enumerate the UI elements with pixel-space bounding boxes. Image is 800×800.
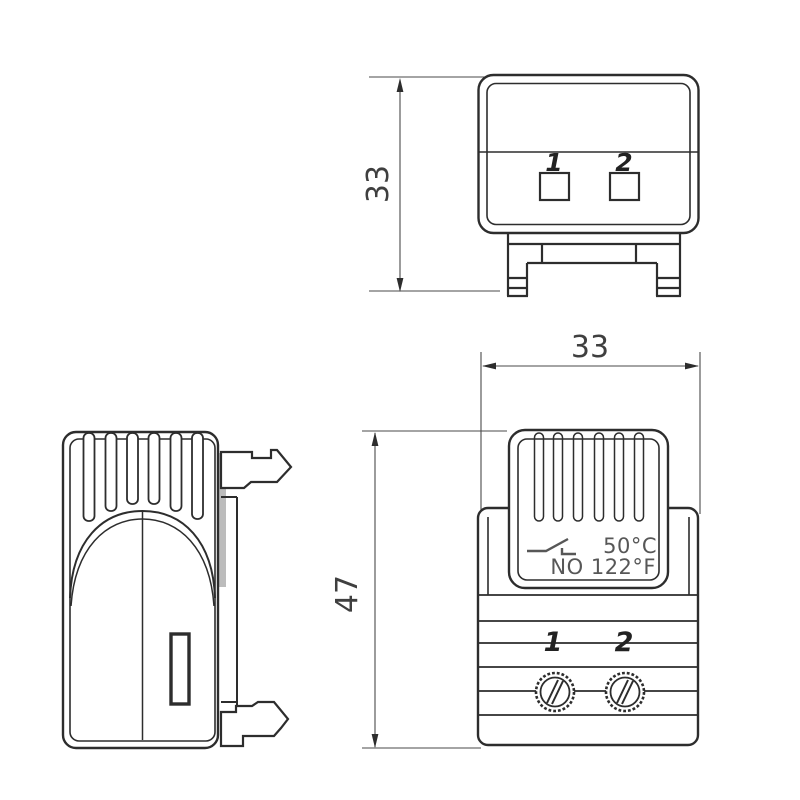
vent-slot <box>127 433 138 504</box>
screw-head <box>611 678 640 707</box>
terminal-port-2 <box>610 173 639 200</box>
din-rail-mount-top-view <box>507 233 681 296</box>
dimension-label: 33 <box>361 165 396 203</box>
arrowhead-right-icon <box>685 363 699 370</box>
dimension-label: 47 <box>330 575 365 613</box>
vent-slot <box>84 433 95 521</box>
top-view: 33 1 2 <box>361 75 699 296</box>
technical-drawing-svg: 33 1 2 33 47 <box>0 0 800 800</box>
din-clip-bottom <box>221 702 288 746</box>
terminal-label-1: 1 <box>545 148 562 177</box>
arrowhead-up-icon <box>397 78 404 92</box>
terminal-port-1 <box>540 173 569 200</box>
drawing-canvas: 33 1 2 33 47 <box>0 0 800 800</box>
terminal-screw-1 <box>536 673 574 711</box>
arrowhead-left-icon <box>482 363 496 370</box>
terminal-label-1: 1 <box>544 627 563 658</box>
vent-slot <box>149 433 160 504</box>
terminal-label-2: 2 <box>615 627 634 658</box>
dimension-label: 33 <box>571 330 609 365</box>
vent-slot <box>171 433 182 511</box>
terminal-label-2: 2 <box>615 148 632 177</box>
arrowhead-down-icon <box>397 278 404 292</box>
indicator-slot <box>171 634 189 704</box>
terminal-screw-2 <box>606 673 644 711</box>
vent-slot <box>106 433 117 511</box>
din-clip-top <box>221 450 291 488</box>
front-view: 33 47 1 2 <box>330 330 700 748</box>
vent-slot <box>192 433 203 519</box>
side-view <box>63 432 291 748</box>
arrowhead-down-icon <box>372 734 379 748</box>
rating-no-temperature-f: NO 122°F <box>550 555 656 579</box>
top-view-outer-outline <box>479 75 699 233</box>
arrowhead-up-icon <box>372 432 379 446</box>
screw-head <box>541 678 570 707</box>
